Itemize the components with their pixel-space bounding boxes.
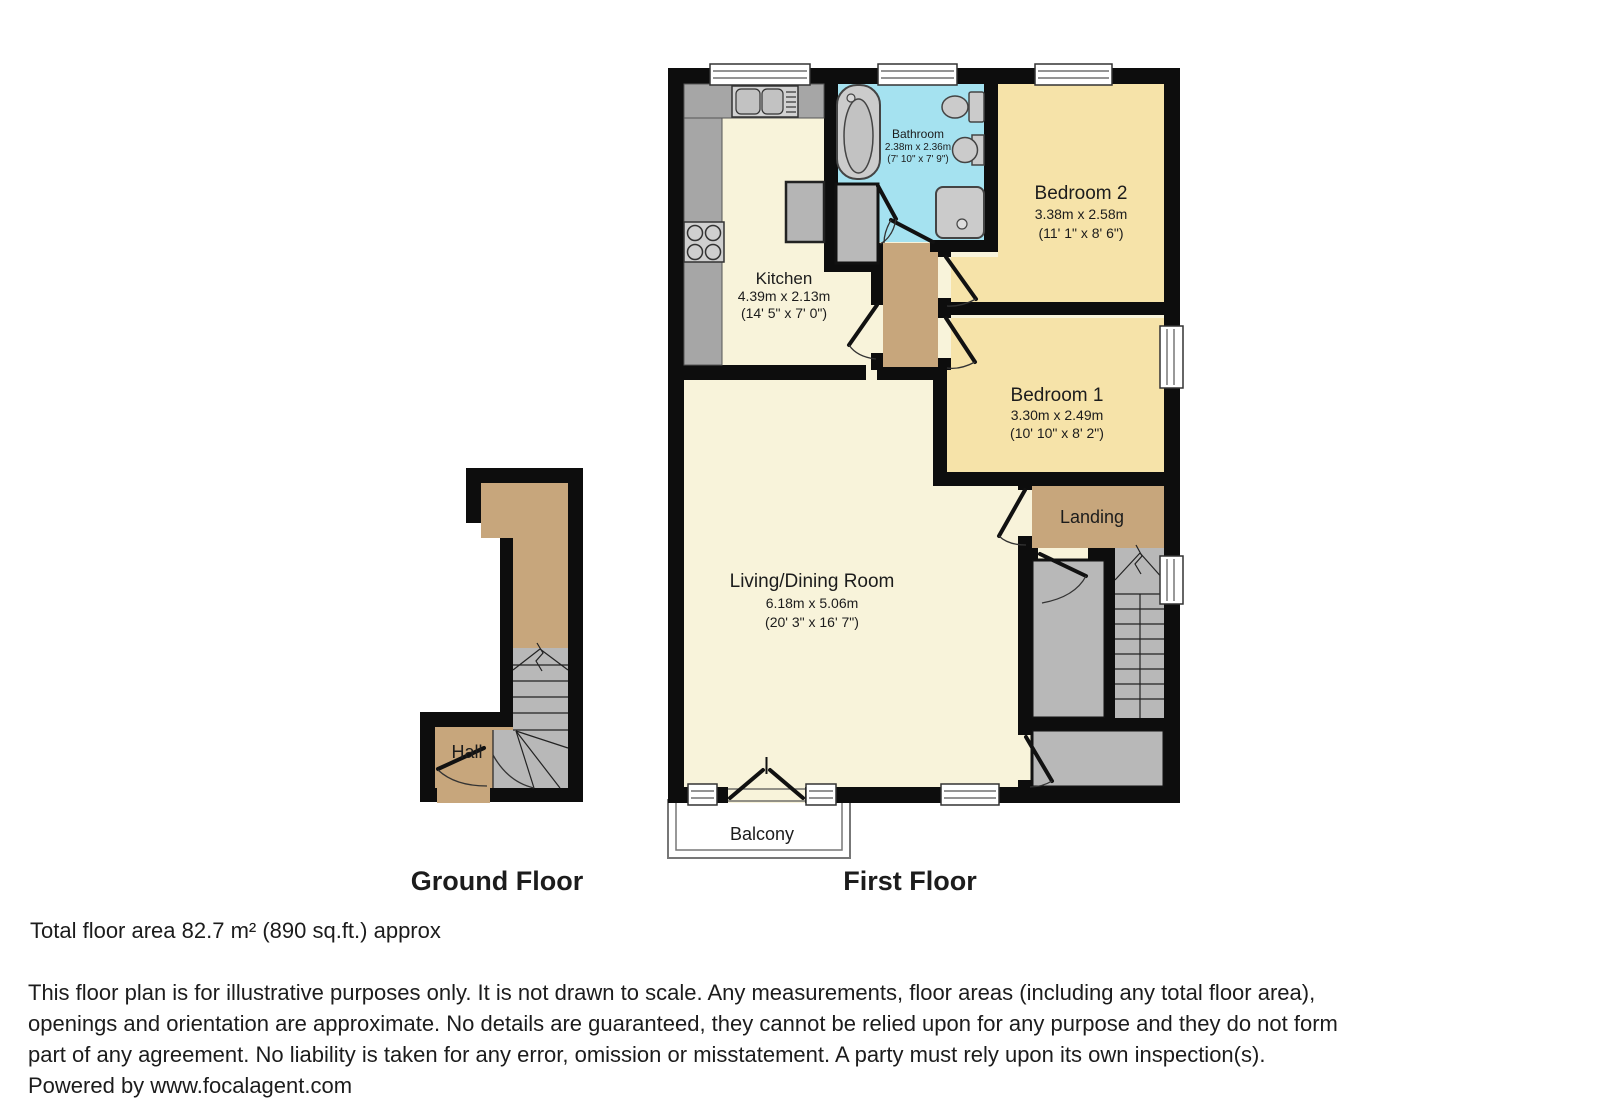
bedroom2-dims-metric: 3.38m x 2.58m [1035,206,1128,222]
bathtub-icon [837,85,880,179]
hall-label: Hall [451,742,482,762]
bathroom-dims-metric: 2.38m x 2.36m [885,142,951,153]
total-floor-area: Total floor area 82.7 m² (890 sq.ft.) ap… [30,918,441,943]
disclaimer-line-2: openings and orientation are approximate… [28,1011,1338,1036]
window-living-mid [806,784,836,805]
bathroom-dims-imperial: (7' 10" x 7' 9") [887,154,949,165]
kitchen-unit [786,182,824,242]
bedroom1-dims-imperial: (10' 10" x 8' 2") [1010,425,1104,441]
kitchen-dims-imperial: (14' 5" x 7' 0") [741,305,827,321]
bedroom2-label: Bedroom 2 [1035,183,1128,204]
window-stairs [1160,556,1183,604]
floor-plan-drawing: Kitchen 4.39m x 2.13m (14' 5" x 7' 0") B… [0,0,1600,1119]
shower-icon [936,187,984,238]
living-label: Living/Dining Room [730,571,895,592]
kitchen-sink-icon [732,86,798,117]
window-bedroom1 [1160,326,1183,388]
basin-icon [953,135,985,165]
first-floor-stairs [1115,545,1164,718]
disclaimer-line-3: part of any agreement. No liability is t… [28,1042,1265,1067]
ground-floor-plan: Hall [420,468,583,803]
first-floor-title: First Floor [843,866,977,896]
airing-cupboard [836,184,878,263]
living-dims-metric: 6.18m x 5.06m [766,595,859,611]
first-floor-plan: Kitchen 4.39m x 2.13m (14' 5" x 7' 0") B… [668,64,1183,858]
closet-store [1032,560,1105,718]
window-bedroom2 [1035,64,1112,85]
bathroom-label: Bathroom [892,127,944,141]
ground-floor-title: Ground Floor [411,866,584,896]
footer: Total floor area 82.7 m² (890 sq.ft.) ap… [28,918,1338,1098]
window-living-right [941,784,999,805]
window-kitchen [710,64,810,85]
balcony-label: Balcony [730,824,794,844]
kitchen-label: Kitchen [756,269,813,288]
floor-titles: Ground Floor First Floor [411,866,977,896]
bedroom1-dims-metric: 3.30m x 2.49m [1011,407,1104,423]
window-bathroom [878,64,957,85]
kitchen-dims-metric: 4.39m x 2.13m [738,288,831,304]
hallway-corridor [883,243,938,369]
landing-label: Landing [1060,507,1124,527]
disclaimer-line-1: This floor plan is for illustrative purp… [28,980,1315,1005]
window-living-left [688,784,717,805]
bedroom2-dims-imperial: (11' 1" x 8' 6") [1038,225,1123,241]
stove-hob-icon [684,222,724,262]
living-dims-imperial: (20' 3" x 16' 7") [765,614,859,630]
bedroom1-label: Bedroom 1 [1011,385,1104,406]
disclaimer-line-4: Powered by www.focalagent.com [28,1073,352,1098]
floor-plan-page: Kitchen 4.39m x 2.13m (14' 5" x 7' 0") B… [0,0,1600,1119]
